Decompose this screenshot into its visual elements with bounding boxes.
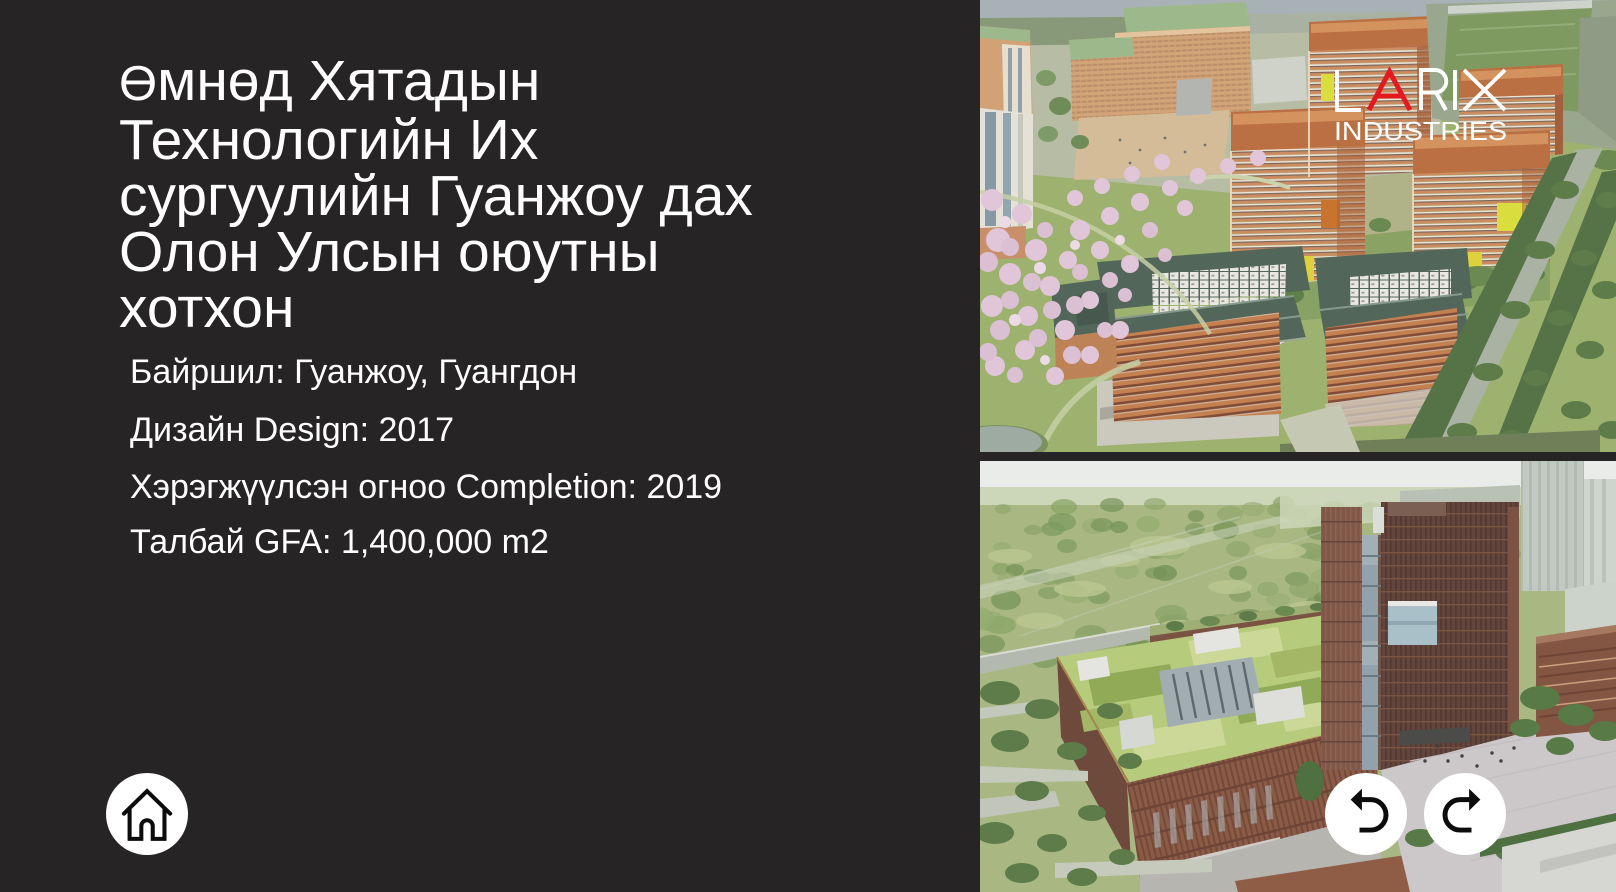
svg-text:INDUSTRIES: INDUSTRIES — [1334, 116, 1507, 146]
